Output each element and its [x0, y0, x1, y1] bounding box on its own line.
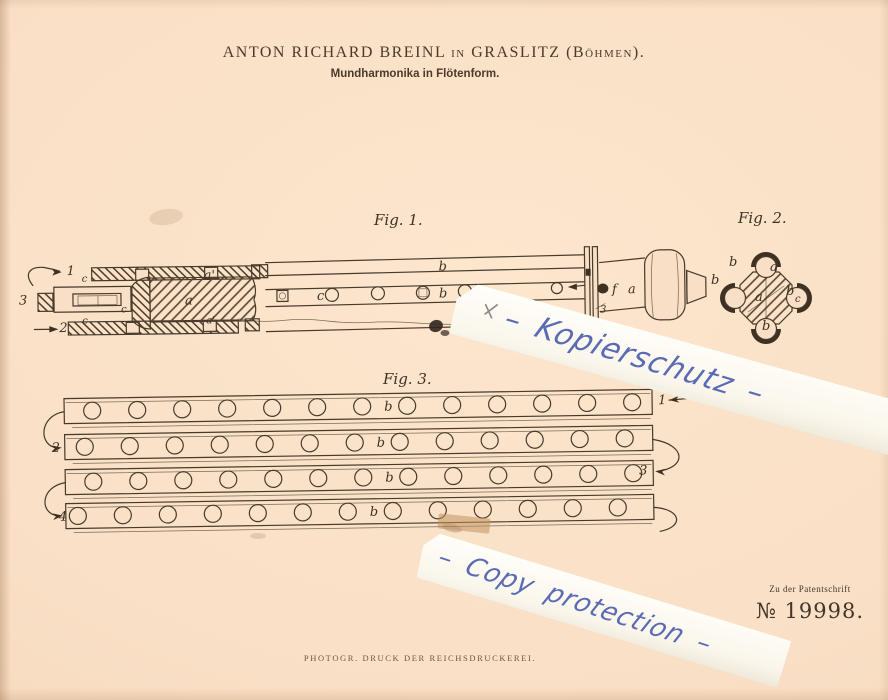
tone-hole	[616, 430, 633, 447]
tone-hole	[129, 401, 146, 418]
tone-hole	[219, 400, 236, 417]
tone-hole	[69, 507, 86, 524]
patent-reference: Zu der Patentschrift № 19998.	[735, 584, 885, 623]
tone-hole	[623, 394, 640, 411]
tone-hole	[355, 469, 372, 486]
tone-hole	[490, 467, 507, 484]
figure-label: a'	[206, 315, 215, 326]
tone-hole	[609, 499, 626, 516]
tone-hole	[436, 433, 453, 450]
figure-label: c	[121, 304, 127, 315]
tone-hole	[519, 500, 536, 517]
figure-label: a	[185, 294, 193, 309]
tone-hole	[309, 399, 326, 416]
fig3-caption: Fig. 3.	[382, 370, 432, 388]
figure-label: c	[82, 316, 88, 327]
figure-label: c	[82, 274, 88, 285]
tone-hole	[114, 507, 131, 524]
tone-hole	[220, 471, 237, 488]
tone-hole	[256, 435, 273, 452]
figure-label: b	[439, 286, 448, 301]
figure-label: f	[611, 282, 619, 297]
tone-hole	[384, 502, 401, 519]
figure-label: c	[795, 294, 801, 305]
tone-hole	[159, 506, 176, 523]
tone-hole	[534, 395, 551, 412]
tone-hole	[211, 436, 228, 453]
tone-hole	[265, 470, 282, 487]
arrowhead-icon	[655, 468, 665, 475]
figure-label: a	[628, 282, 636, 297]
tone-hole	[526, 431, 543, 448]
tone-hole	[571, 430, 588, 447]
figure-label: 2	[58, 321, 67, 336]
tone-hole	[564, 500, 581, 517]
tone-hole	[204, 505, 221, 522]
figure-label: a	[755, 290, 763, 305]
figure-label: b	[786, 284, 794, 299]
strip-number-label: 3	[639, 463, 648, 478]
fig3-drawing: b1b2b3b4	[43, 388, 718, 541]
tone-hole	[121, 437, 138, 454]
figure-label: a'	[770, 260, 781, 275]
tone-hole	[399, 397, 416, 414]
fig2-caption: Fig. 2.	[737, 209, 787, 227]
tone-hole	[444, 396, 461, 413]
figure-label: a'	[204, 268, 216, 283]
tone-hole	[346, 434, 363, 451]
tone-hole	[400, 468, 417, 485]
figure-label: b	[711, 273, 719, 288]
tone-hole	[175, 472, 192, 489]
figure-label: b	[384, 399, 393, 414]
tone-hole	[489, 396, 506, 413]
figure-label: 1	[67, 264, 75, 279]
figure-label: 3	[19, 294, 27, 309]
figure-label: b	[762, 319, 770, 334]
tone-hole	[481, 432, 498, 449]
tone-hole	[391, 433, 408, 450]
tone-hole	[339, 503, 356, 520]
tone-hole	[580, 465, 597, 482]
tone-hole	[445, 467, 462, 484]
tone-hole	[354, 398, 371, 415]
tone-hole	[85, 473, 102, 490]
figure-label: 3	[600, 305, 607, 316]
tone-hole	[130, 472, 147, 489]
figure-label: b	[370, 505, 379, 520]
tone-hole	[310, 470, 327, 487]
figure-label: b	[377, 436, 386, 451]
tone-hole	[474, 501, 491, 518]
strip-number-label: 1	[658, 393, 667, 408]
tone-hole	[249, 504, 266, 521]
figure-label: c	[317, 289, 325, 304]
tone-hole	[84, 402, 101, 419]
tone-hole	[535, 466, 552, 483]
patent-document-page: ANTON RICHARD BREINL in GRASLITZ (Böhmen…	[0, 0, 888, 700]
figure-label: b	[385, 470, 394, 485]
tone-hole	[166, 437, 183, 454]
tone-hole	[174, 401, 191, 418]
patent-ref-label: Zu der Patentschrift	[735, 584, 885, 594]
tone-hole	[294, 504, 311, 521]
tone-hole	[76, 438, 93, 455]
fig1-caption: Fig. 1.	[373, 211, 423, 229]
page-title: ANTON RICHARD BREINL in GRASLITZ (Böhmen…	[0, 44, 868, 62]
figure-label: b	[729, 255, 737, 270]
patent-number: № 19998.	[735, 599, 885, 623]
figure-label: b	[439, 259, 448, 274]
page-subtitle: Mundharmonika in Flötenform.	[0, 68, 830, 80]
tone-hole	[264, 399, 281, 416]
tone-hole	[301, 435, 318, 452]
tone-hole	[578, 394, 595, 411]
